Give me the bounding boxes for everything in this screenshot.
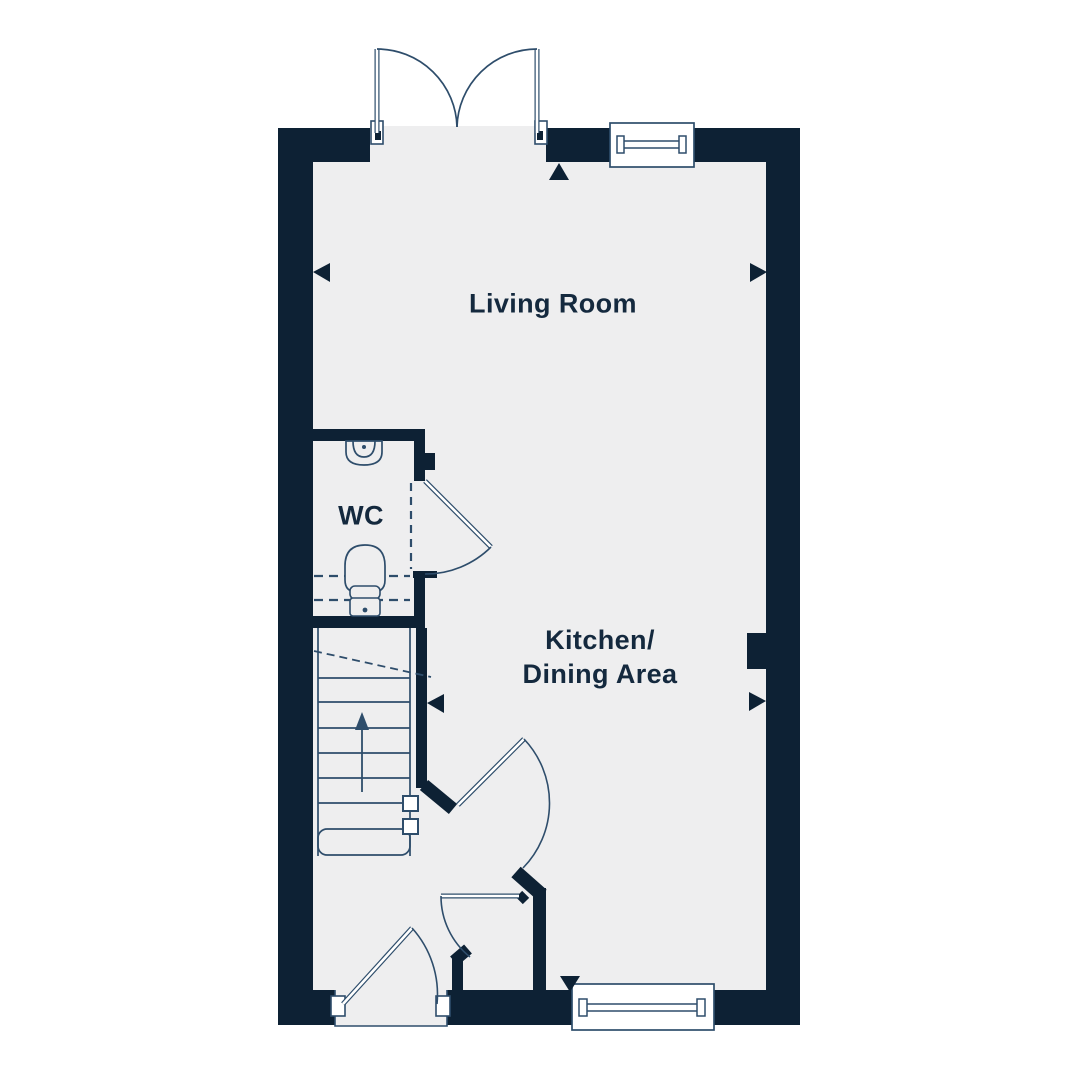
kitchen-wall-pier [747,633,766,669]
bottom-wall-segment [447,990,580,1025]
top-window [610,123,694,167]
wc-right-wall-upper [414,429,425,481]
door-jamb [331,996,345,1016]
living-room-label: Living Room [469,289,637,320]
wc-door-jamb-stub [425,453,435,470]
right-wall [766,128,800,1025]
toilet-flush-button [363,608,368,613]
window-frame [610,123,694,167]
toilet-cistern [350,598,380,616]
floor-plan-drawing [0,0,1080,1080]
door-swing-arc [377,49,457,127]
bottom-wall-segment [706,990,800,1025]
kitchen-dining-label-line2: Dining Area [523,657,678,691]
patio-door-opening [370,126,546,162]
floor-plan: Living Room WC Kitchen/ Dining Area [0,0,1080,1080]
bottom-window [572,984,714,1030]
wash-basin-icon [346,441,382,465]
top-wall-segment [686,128,800,162]
door-swing-arc [457,49,537,127]
wc-top-wall [313,429,425,441]
top-wall-segment [546,128,618,162]
window-frame [572,984,714,1030]
hall-partition-wall [533,888,546,990]
hall-door-hinge-block [519,894,526,901]
left-wall [278,128,313,1025]
kitchen-dining-label-line1: Kitchen/ [523,623,678,657]
toilet-seat [350,586,380,599]
stair-side-wall [416,628,427,788]
kitchen-dining-label: Kitchen/ Dining Area [523,623,678,691]
top-wall-segment [313,128,370,162]
stair-newel-post [403,796,418,811]
wc-bottom-wall [313,616,425,628]
wc-label: WC [338,501,384,532]
wash-basin-tap [362,445,366,449]
toilet-bowl-icon [345,545,385,592]
stair-newel-post [403,819,418,834]
